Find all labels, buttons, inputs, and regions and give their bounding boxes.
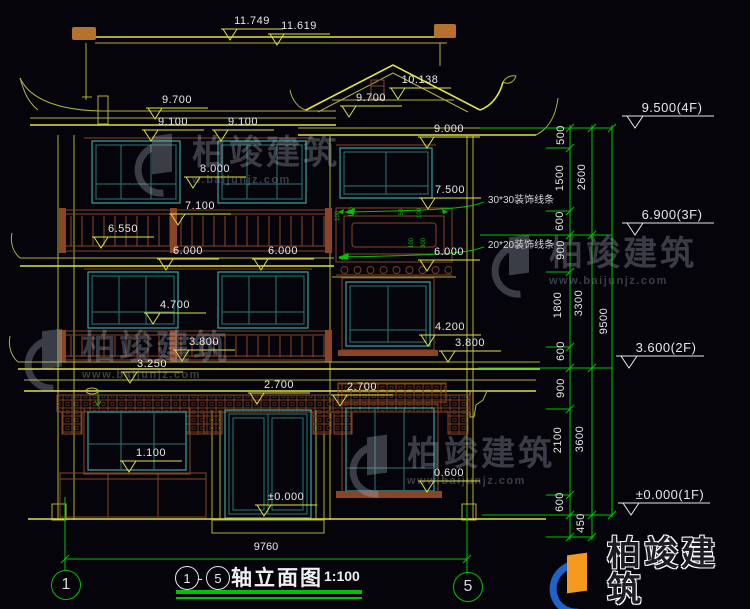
elevation-dim: 6.000 xyxy=(173,245,203,257)
elevation-dim: 10.138 xyxy=(402,74,439,86)
chain-dim: 9500 xyxy=(598,308,610,334)
drawing-title: 轴立面图 xyxy=(231,562,323,592)
elevation-dim: 8.000 xyxy=(200,163,230,175)
title-axis-from: 1 xyxy=(175,566,199,590)
chain-dim: 600 xyxy=(554,211,566,231)
elevation-dim: 6.000 xyxy=(434,246,464,258)
ground-line xyxy=(28,519,546,533)
elevation-dim: 7.500 xyxy=(435,184,465,196)
elevation-dim: 4.200 xyxy=(435,321,465,333)
detail-dim: 100 xyxy=(417,208,423,218)
chain-dim: 1800 xyxy=(552,292,564,318)
elevation-dim: 7.100 xyxy=(185,200,215,212)
chain-dim: 2600 xyxy=(576,164,588,190)
elevation-dim: 3.250 xyxy=(137,358,167,370)
chain-dim: 500 xyxy=(555,125,567,145)
cad-elevation-drawing: 柏竣建筑 w.baijunjz.com 柏竣建筑 www.baijunjz.co… xyxy=(0,0,750,609)
elevation-dim: 9.100 xyxy=(228,116,258,128)
chain-dim: 900 xyxy=(555,240,567,260)
elevation-dim: 11.749 xyxy=(234,15,270,27)
small-balcony xyxy=(332,208,456,277)
elevation-dim: 11.619 xyxy=(281,20,317,32)
title-underline-thin xyxy=(176,597,362,599)
elevation-dim: 3.800 xyxy=(189,336,219,348)
axis-bubble-5: 5 xyxy=(453,572,483,602)
elevation-dim: 9.700 xyxy=(356,92,386,104)
chain-dim: 2100 xyxy=(552,427,564,453)
detail-dim: 100 xyxy=(335,211,341,221)
level-label-4f: 9.500(4F) xyxy=(642,100,703,115)
elevation-dim: ±0.000 xyxy=(268,491,305,503)
elevation-dim: 2.700 xyxy=(264,379,294,391)
elevation-dim: 3.800 xyxy=(455,337,485,349)
elevation-dim: 9.100 xyxy=(158,116,188,128)
dimension-chain xyxy=(478,124,616,541)
elevation-dim: 6.550 xyxy=(108,223,138,235)
elevation-dim: 9.700 xyxy=(162,94,192,106)
elevation-dim: 2.700 xyxy=(347,381,377,393)
molding-note: 30*30装饰线条 xyxy=(488,191,554,206)
level-markers xyxy=(616,116,714,515)
chain-dim: 3300 xyxy=(573,290,585,316)
third-floor-windows xyxy=(84,138,436,203)
title-axis-to: 5 xyxy=(206,566,230,590)
bottom-axis-lines xyxy=(61,497,471,572)
drawing-scale: 1:100 xyxy=(324,568,360,584)
detail-dim: 100 xyxy=(349,207,355,217)
elevation-dim: 0.600 xyxy=(434,467,464,479)
elevation-dim: 9.000 xyxy=(434,123,464,135)
roof-ridge xyxy=(72,24,456,100)
level-label-2f: 3.600(2F) xyxy=(636,340,697,355)
overall-width-dim: 9760 xyxy=(254,541,278,553)
detail-dim: 100 xyxy=(409,238,415,248)
chain-dim: 600 xyxy=(555,341,567,361)
chain-dim: 1500 xyxy=(554,165,566,191)
chain-dim: 900 xyxy=(555,378,567,398)
detail-dim: 300 xyxy=(421,238,427,248)
elevation-dim: 4.700 xyxy=(160,299,190,311)
title-axis-separator: - xyxy=(198,570,203,586)
detail-dim: 50 xyxy=(399,209,405,216)
axis-bubble-1: 1 xyxy=(51,570,81,600)
chain-dim: 3600 xyxy=(574,426,586,452)
third-floor-roof-band xyxy=(298,98,558,135)
chain-dim: 450 xyxy=(575,513,587,533)
first-floor-openings xyxy=(60,404,442,518)
level-label-1f: ±0.000(1F) xyxy=(636,487,705,502)
chain-dim: 600 xyxy=(554,492,566,512)
level-label-3f: 6.900(3F) xyxy=(642,207,703,222)
title-underline xyxy=(176,590,362,594)
elevation-dim: 6.000 xyxy=(268,245,298,257)
molding-note: 20*20装饰线条 xyxy=(488,236,554,251)
elevation-dim: 1.100 xyxy=(136,447,166,459)
